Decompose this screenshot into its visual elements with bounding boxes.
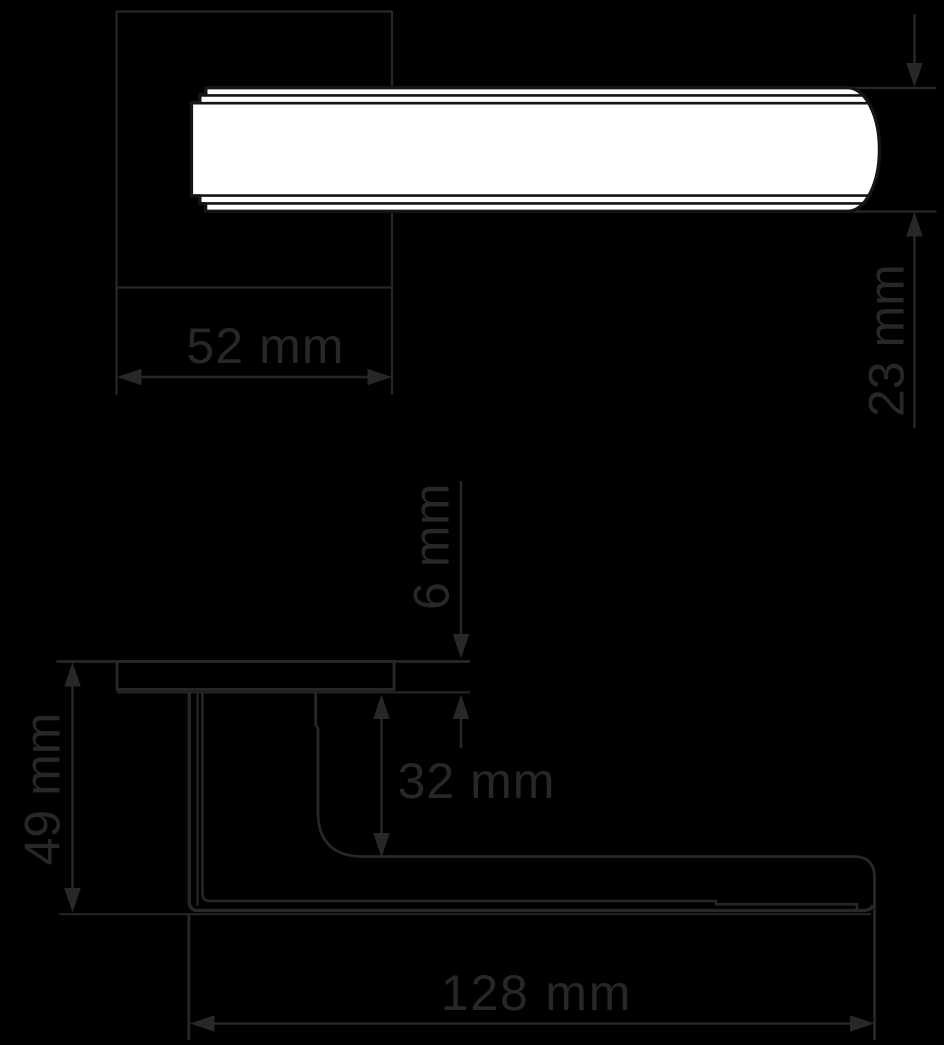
svg-text:128 mm: 128 mm — [441, 965, 632, 1021]
svg-text:49 mm: 49 mm — [15, 713, 71, 866]
svg-text:32 mm: 32 mm — [398, 753, 556, 809]
svg-text:6 mm: 6 mm — [404, 483, 460, 610]
svg-text:52 mm: 52 mm — [186, 318, 344, 374]
svg-text:23 mm: 23 mm — [859, 264, 915, 417]
